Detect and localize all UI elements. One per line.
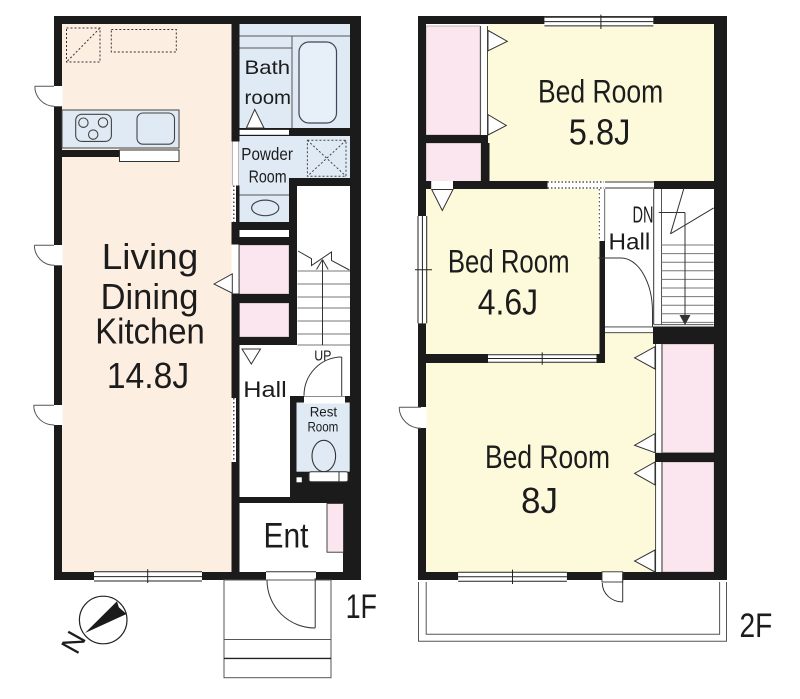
svg-text:Room: Room xyxy=(307,420,338,436)
svg-text:Bath: Bath xyxy=(245,57,291,79)
svg-text:Bed Room: Bed Room xyxy=(448,243,570,279)
svg-text:1F: 1F xyxy=(346,588,377,626)
svg-text:DN: DN xyxy=(633,201,654,227)
svg-text:5.8J: 5.8J xyxy=(569,112,631,153)
svg-text:Hall: Hall xyxy=(243,377,287,402)
svg-text:14.8J: 14.8J xyxy=(107,355,189,396)
svg-text:Rest: Rest xyxy=(310,405,337,421)
svg-text:4.6J: 4.6J xyxy=(478,282,538,323)
svg-text:Living: Living xyxy=(102,236,199,277)
svg-text:room: room xyxy=(245,87,292,109)
svg-text:Ent: Ent xyxy=(264,517,309,556)
svg-text:Room: Room xyxy=(249,167,287,187)
svg-text:Bed Room: Bed Room xyxy=(485,439,610,475)
svg-text:Kitchen: Kitchen xyxy=(95,311,204,352)
svg-text:2F: 2F xyxy=(740,607,773,645)
svg-text:UP: UP xyxy=(314,349,331,365)
svg-text:Bed Room: Bed Room xyxy=(538,74,663,110)
svg-text:8J: 8J xyxy=(521,480,558,521)
svg-text:Hall: Hall xyxy=(609,228,651,254)
svg-text:Powder: Powder xyxy=(241,144,293,164)
